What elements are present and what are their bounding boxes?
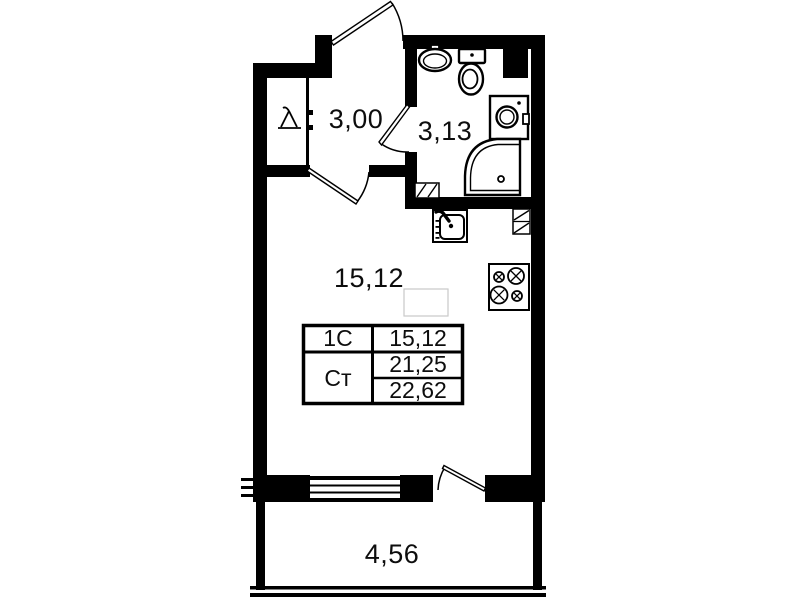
washing-machine (490, 96, 529, 139)
entrance-door (331, 2, 403, 46)
table-area-with-balcony: 22,62 (389, 377, 447, 403)
wall-entrance-step (315, 35, 332, 78)
wall-stub (241, 478, 253, 481)
kitchen-vent-grille-icon (513, 209, 530, 234)
shower (465, 139, 520, 195)
wall-bottom-pier-mid (400, 475, 433, 502)
wall-balcony-right (533, 498, 542, 590)
wall-right (531, 35, 545, 477)
closet-hinge-tick (309, 125, 313, 130)
bathroom-door (379, 105, 410, 153)
kitchen-sink (433, 210, 467, 242)
wall-hall-living-right (369, 165, 417, 177)
wardrobe-hanger-icon (278, 107, 301, 128)
floor-plan: 1С 15,12 Ст 21,25 22,62 3,00 3,13 15,12 … (0, 0, 799, 600)
balcony-area-label: 4,56 (365, 539, 420, 569)
table-apartment-type: Ст (324, 365, 352, 391)
bathroom-vent-grille-icon (415, 183, 439, 198)
wall-bottom-pier-left (253, 475, 310, 502)
wall-stub (241, 486, 253, 489)
wall-balcony-left (256, 498, 265, 590)
living-room-area-label: 15,12 (334, 263, 404, 293)
faint-outline (404, 289, 448, 316)
table-area-without-balcony: 21,25 (389, 351, 447, 377)
table-room-type: 1С (323, 325, 352, 351)
wall-closet-partition (306, 78, 309, 165)
bathroom-area-label: 3,13 (418, 116, 473, 146)
wall-hall-living-left (253, 165, 310, 177)
wall-bathroom-left-upper (405, 49, 417, 107)
wall-bathroom-top (403, 35, 545, 49)
hallway-area-label: 3,00 (329, 104, 384, 134)
toilet (459, 49, 485, 95)
wall-bathroom-bottom (405, 197, 531, 209)
closet-hinge-tick (309, 110, 313, 115)
wall-closet-top (253, 63, 322, 78)
table-living-area: 15,12 (389, 325, 447, 351)
stove (489, 264, 529, 310)
wall-bottom-pier-right (485, 475, 545, 502)
window (310, 476, 400, 502)
wall-left (253, 63, 267, 477)
balcony-door (438, 466, 486, 492)
hallway-door (307, 168, 369, 204)
ventilation-shaft (503, 47, 528, 78)
wall-stub (241, 494, 253, 497)
balcony-glazing (250, 586, 546, 597)
